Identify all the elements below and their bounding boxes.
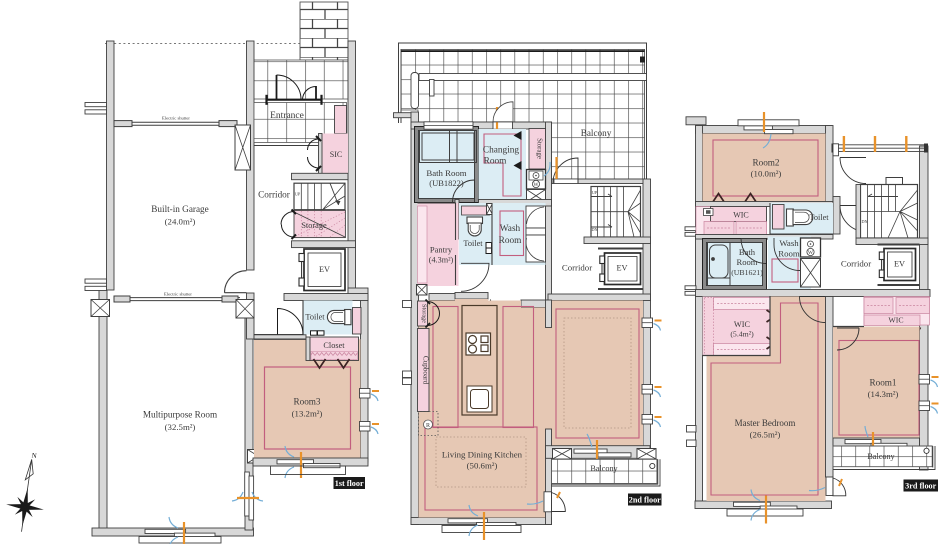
svg-text:Wash: Wash xyxy=(500,224,521,234)
svg-text:Electric shutter: Electric shutter xyxy=(164,292,192,297)
svg-text:R: R xyxy=(426,423,430,429)
svg-text:(24.0m²): (24.0m²) xyxy=(165,217,196,227)
svg-text:Toilet: Toilet xyxy=(305,313,325,322)
svg-text:Entrance: Entrance xyxy=(270,111,304,121)
svg-text:Built-in Garage: Built-in Garage xyxy=(151,204,208,214)
svg-text:(4.3m²): (4.3m²) xyxy=(429,256,454,265)
svg-text:Toilet: Toilet xyxy=(463,239,483,248)
svg-text:Room2: Room2 xyxy=(752,158,779,168)
svg-text:Room: Room xyxy=(499,236,522,246)
svg-text:W: W xyxy=(533,182,539,188)
svg-text:EV: EV xyxy=(319,265,330,274)
svg-text:2nd floor: 2nd floor xyxy=(629,496,661,505)
svg-text:(5.4m²): (5.4m²) xyxy=(730,330,754,339)
svg-text:(32.5m²): (32.5m²) xyxy=(165,422,196,432)
svg-text:EV: EV xyxy=(894,260,905,269)
svg-text:WIC: WIC xyxy=(888,316,903,325)
svg-text:Balcony: Balcony xyxy=(590,464,618,473)
svg-text:(13.2m²): (13.2m²) xyxy=(292,409,323,419)
svg-text:Room: Room xyxy=(778,249,800,259)
svg-text:UP: UP xyxy=(592,190,598,195)
svg-text:Room3: Room3 xyxy=(293,397,320,407)
svg-text:Storage: Storage xyxy=(301,221,327,230)
svg-text:Bath Room: Bath Room xyxy=(426,168,466,178)
svg-text:Room: Room xyxy=(736,257,757,267)
svg-text:DN: DN xyxy=(591,227,597,232)
svg-text:Changing: Changing xyxy=(483,146,520,156)
svg-text:Cupboard: Cupboard xyxy=(422,356,430,385)
svg-text:(26.5m²): (26.5m²) xyxy=(750,430,781,440)
svg-text:Room1: Room1 xyxy=(869,378,896,388)
svg-text:3rd floor: 3rd floor xyxy=(905,482,937,491)
svg-text:Wash: Wash xyxy=(779,238,799,248)
svg-text:Corridor: Corridor xyxy=(562,263,592,273)
svg-text:Storage: Storage xyxy=(421,304,428,323)
svg-text:Toilet: Toilet xyxy=(809,213,829,222)
svg-text:Living Dining Kitchen: Living Dining Kitchen xyxy=(442,450,523,460)
svg-text:WIC: WIC xyxy=(733,211,749,220)
svg-text:(14.3m²): (14.3m²) xyxy=(868,389,899,399)
svg-text:Master Bedroom: Master Bedroom xyxy=(735,418,796,428)
svg-text:Electric shutter: Electric shutter xyxy=(162,116,190,121)
svg-text:Corridor: Corridor xyxy=(258,190,290,200)
svg-text:W: W xyxy=(808,250,814,256)
svg-text:Closet: Closet xyxy=(323,341,345,350)
svg-text:Balcony: Balcony xyxy=(581,128,612,138)
svg-text:WIC: WIC xyxy=(734,320,751,329)
svg-text:1st floor: 1st floor xyxy=(335,479,364,488)
svg-text:N: N xyxy=(31,452,37,460)
svg-text:Storage: Storage xyxy=(536,138,543,159)
svg-text:Pantry: Pantry xyxy=(430,245,453,255)
svg-text:(50.6m²): (50.6m²) xyxy=(467,461,498,471)
svg-text:Balcony: Balcony xyxy=(867,452,895,461)
svg-text:DN: DN xyxy=(861,219,867,224)
svg-text:(10.0m²): (10.0m²) xyxy=(751,169,782,179)
svg-text:(UB1621): (UB1621) xyxy=(731,268,763,277)
svg-text:Corridor: Corridor xyxy=(841,259,871,269)
svg-text:Room: Room xyxy=(484,157,507,167)
svg-text:Multipurpose Room: Multipurpose Room xyxy=(143,410,217,420)
svg-text:UP: UP xyxy=(295,192,301,197)
svg-text:EV: EV xyxy=(616,264,627,273)
svg-text:SIC: SIC xyxy=(330,150,342,159)
